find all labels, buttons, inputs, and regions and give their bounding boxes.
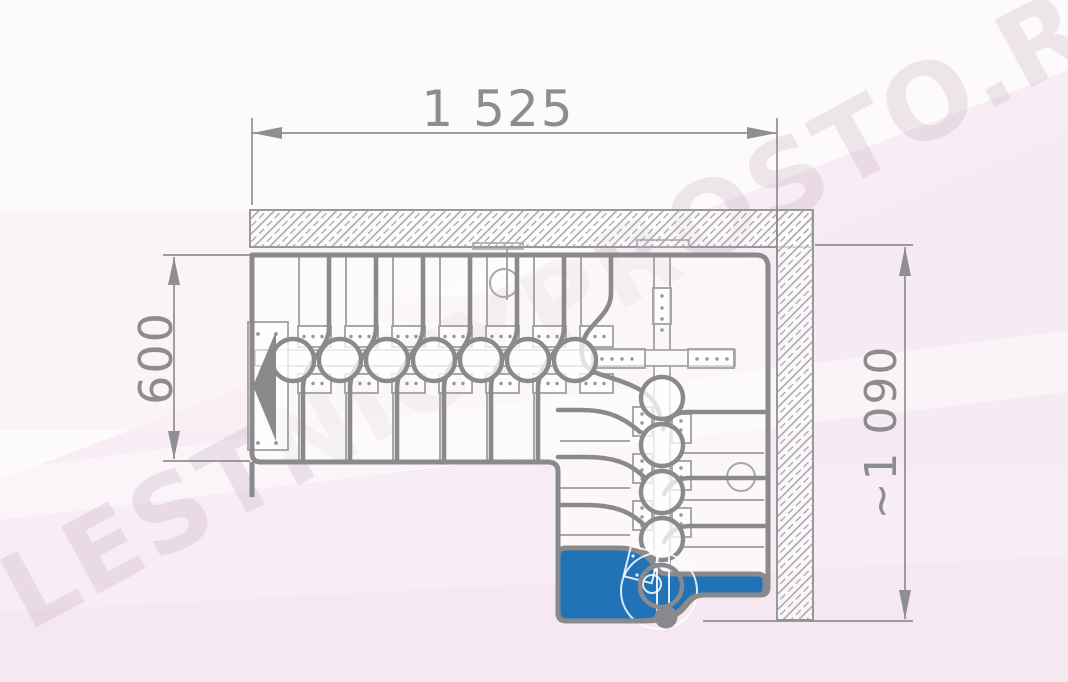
dimension-top-label: 1 525: [421, 80, 574, 138]
staircase-drawing-canvas: LESTNICYPROSTO.RU: [0, 0, 1068, 682]
dimension-right-label: ~1 090: [856, 345, 907, 520]
dimension-left-label: 600: [129, 311, 183, 405]
staircase-plan-svg: LESTNICYPROSTO.RU: [0, 0, 1068, 682]
